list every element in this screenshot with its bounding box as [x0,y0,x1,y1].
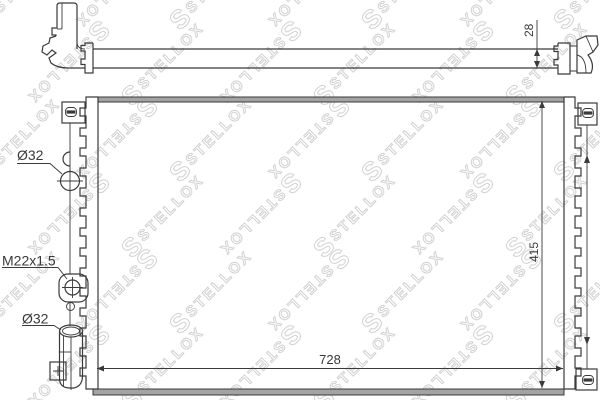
drain-spout [42,36,85,68]
mount-brackets [62,102,597,390]
label-thread: M22x1.5 [2,253,56,269]
dim28-arrow-down [534,61,540,68]
right-tank-strip [564,97,581,389]
pipe-bump-arc [63,152,70,166]
leader-thread [2,268,67,280]
radiator-core [80,97,581,395]
dim728-value: 728 [319,352,341,367]
dim28-arrow-up [534,49,540,56]
radiator-diagram-svg: 28 [0,0,600,400]
dim415-value: 415 [527,242,541,262]
dimension-core-width: 728 [97,352,563,372]
label-port-bottom: Ø32 [22,311,49,327]
port-labels: Ø32 M22x1.5 Ø32 [2,147,67,330]
dim415-arrow-bottom [539,381,545,388]
core-top-band [98,97,564,102]
catalog-drawing-page: SSTELLOXSSTELLOXSSTELLOXSSTELLOXSSTELLOX… [0,0,600,400]
label-port-top: Ø32 [17,147,44,163]
outlet-elbow-right [577,36,598,73]
outlet-elbow-inner-curve [577,55,586,73]
dim28-value: 28 [522,23,536,37]
dim728-arrow-right [556,366,563,372]
leader-port-top [17,164,62,175]
port-top-crosshair [57,169,83,194]
right-elbow-stub [570,40,577,73]
bracket-link-mark-top [584,155,590,163]
outlet-elbow-crease [586,36,593,52]
top-inlet-pipe-assembly [42,3,598,74]
filler-neck [52,3,77,49]
dimension-core-height: 415 [527,101,545,388]
right-pipe-flange [554,43,570,74]
core-bottom-band [93,389,564,395]
outlet-pipe-rim-inner [63,327,80,335]
bracket-link-mark-bottom [584,337,590,345]
small-pin-hole [67,303,75,311]
dimension-inlet-pipe-height: 28 [522,20,540,68]
pipe-mount-cross [53,366,63,376]
